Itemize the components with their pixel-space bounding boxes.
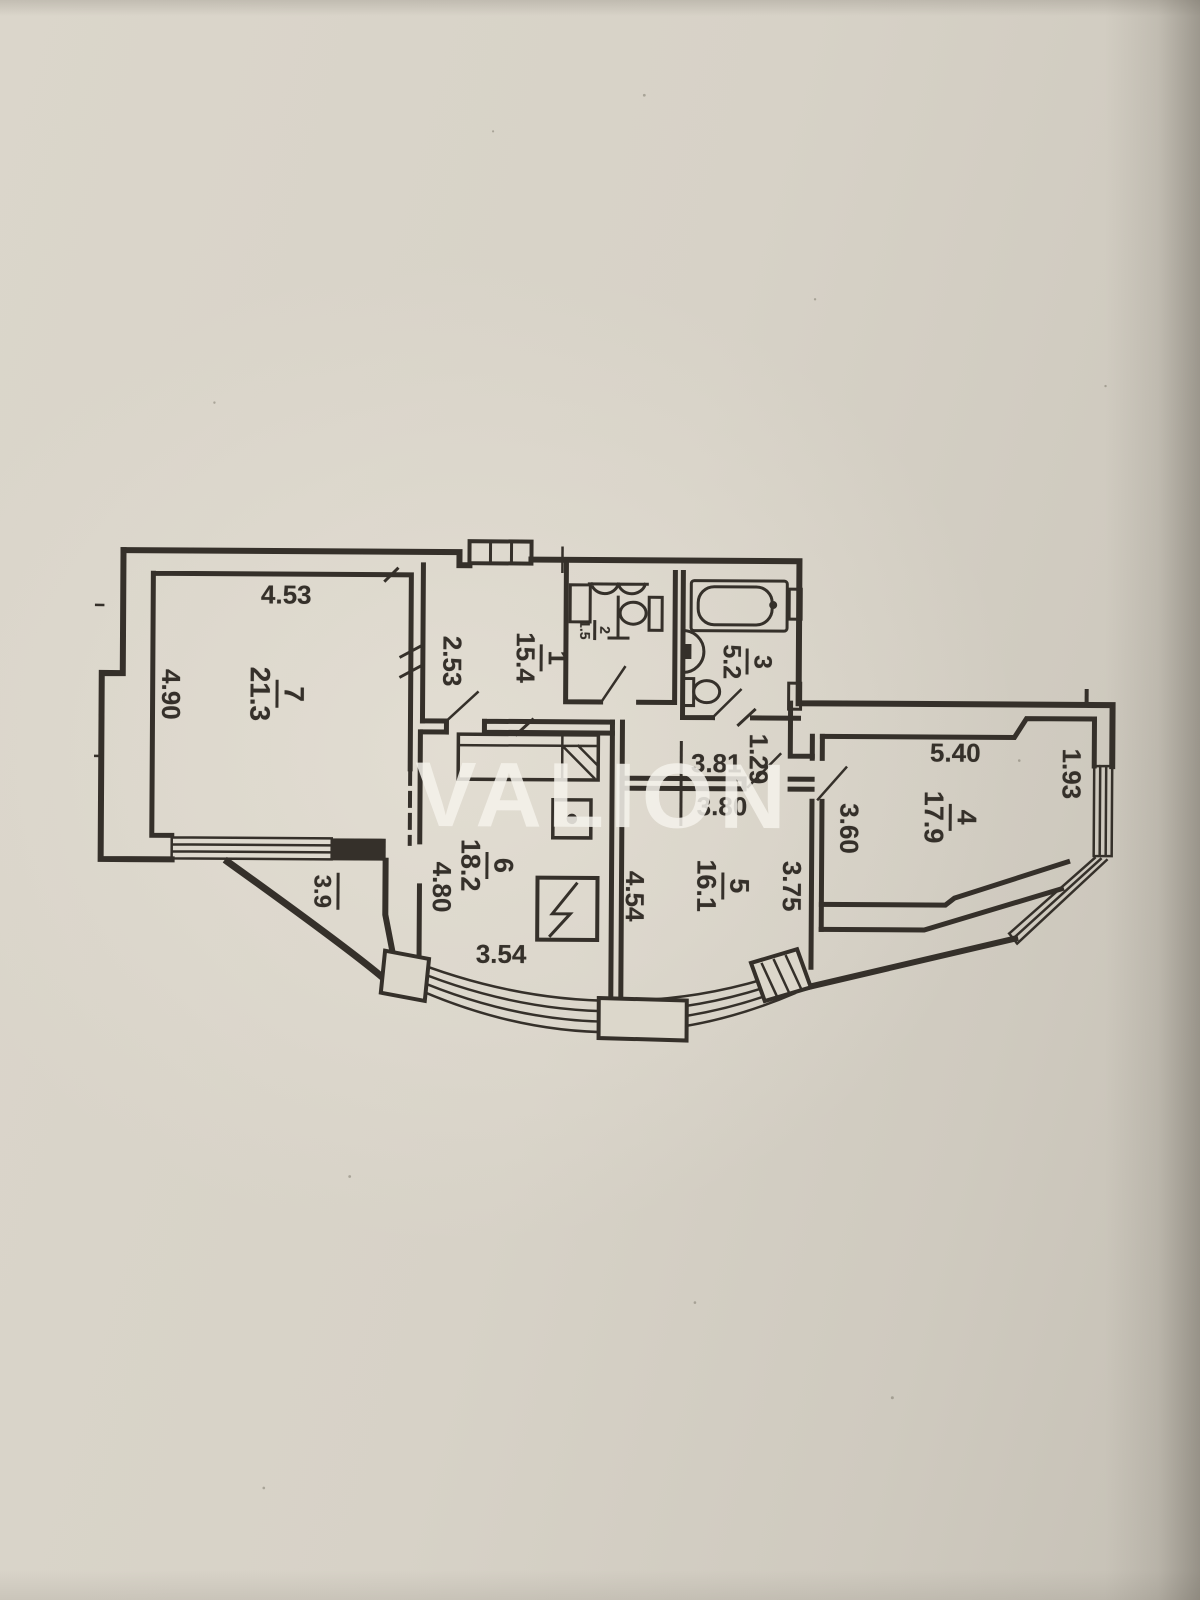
- dim-label-4-80: 4.80: [426, 862, 457, 913]
- sink-icon: [683, 631, 704, 673]
- bay-window-curve: [395, 958, 795, 1034]
- door-room4: [818, 767, 846, 799]
- dim-label-1-93: 1.93: [1056, 748, 1087, 799]
- dim-label-4-90: 4.90: [155, 669, 186, 720]
- room-label-4: 417.9: [919, 791, 981, 844]
- room-label-3: 35.2: [718, 644, 776, 679]
- room-label-5: 516.1: [691, 859, 753, 912]
- wall-block: [332, 838, 386, 860]
- watermark: VALION: [415, 749, 792, 843]
- dim-label-3-60: 3.60: [833, 803, 864, 854]
- room-label-6: 618.2: [456, 839, 518, 892]
- window-room4-right: [1094, 766, 1113, 856]
- dim-label-5-40: 5.40: [930, 738, 981, 769]
- door-room6: [448, 692, 477, 719]
- dim-label-3-54: 3.54: [476, 939, 527, 970]
- room-label-1: 115.4: [511, 632, 571, 683]
- toilet-icon: [683, 679, 720, 706]
- vent-shaft-top: [469, 541, 531, 563]
- dim-label-4-53: 4.53: [261, 579, 312, 610]
- stove-icon: [537, 878, 597, 940]
- door-wc: [603, 667, 625, 700]
- room-label-balcony: 3.9: [309, 873, 339, 911]
- floorplan: 721.3115.421.535.2417.9516.1618.23.94.53…: [0, 0, 1200, 1600]
- window-room7: [172, 837, 332, 859]
- room-label-2: 21.5: [578, 620, 612, 640]
- dim-label-2-53: 2.53: [436, 636, 467, 687]
- dim-label-4-54: 4.54: [619, 871, 650, 922]
- toilet-icon: [620, 597, 662, 630]
- bathtub-icon: [691, 581, 787, 632]
- room-label-7: 721.3: [245, 667, 309, 722]
- floorplan-photo: 721.3115.421.535.2417.9516.1618.23.94.53…: [0, 0, 1200, 1600]
- dim-label-3-75: 3.75: [776, 861, 807, 912]
